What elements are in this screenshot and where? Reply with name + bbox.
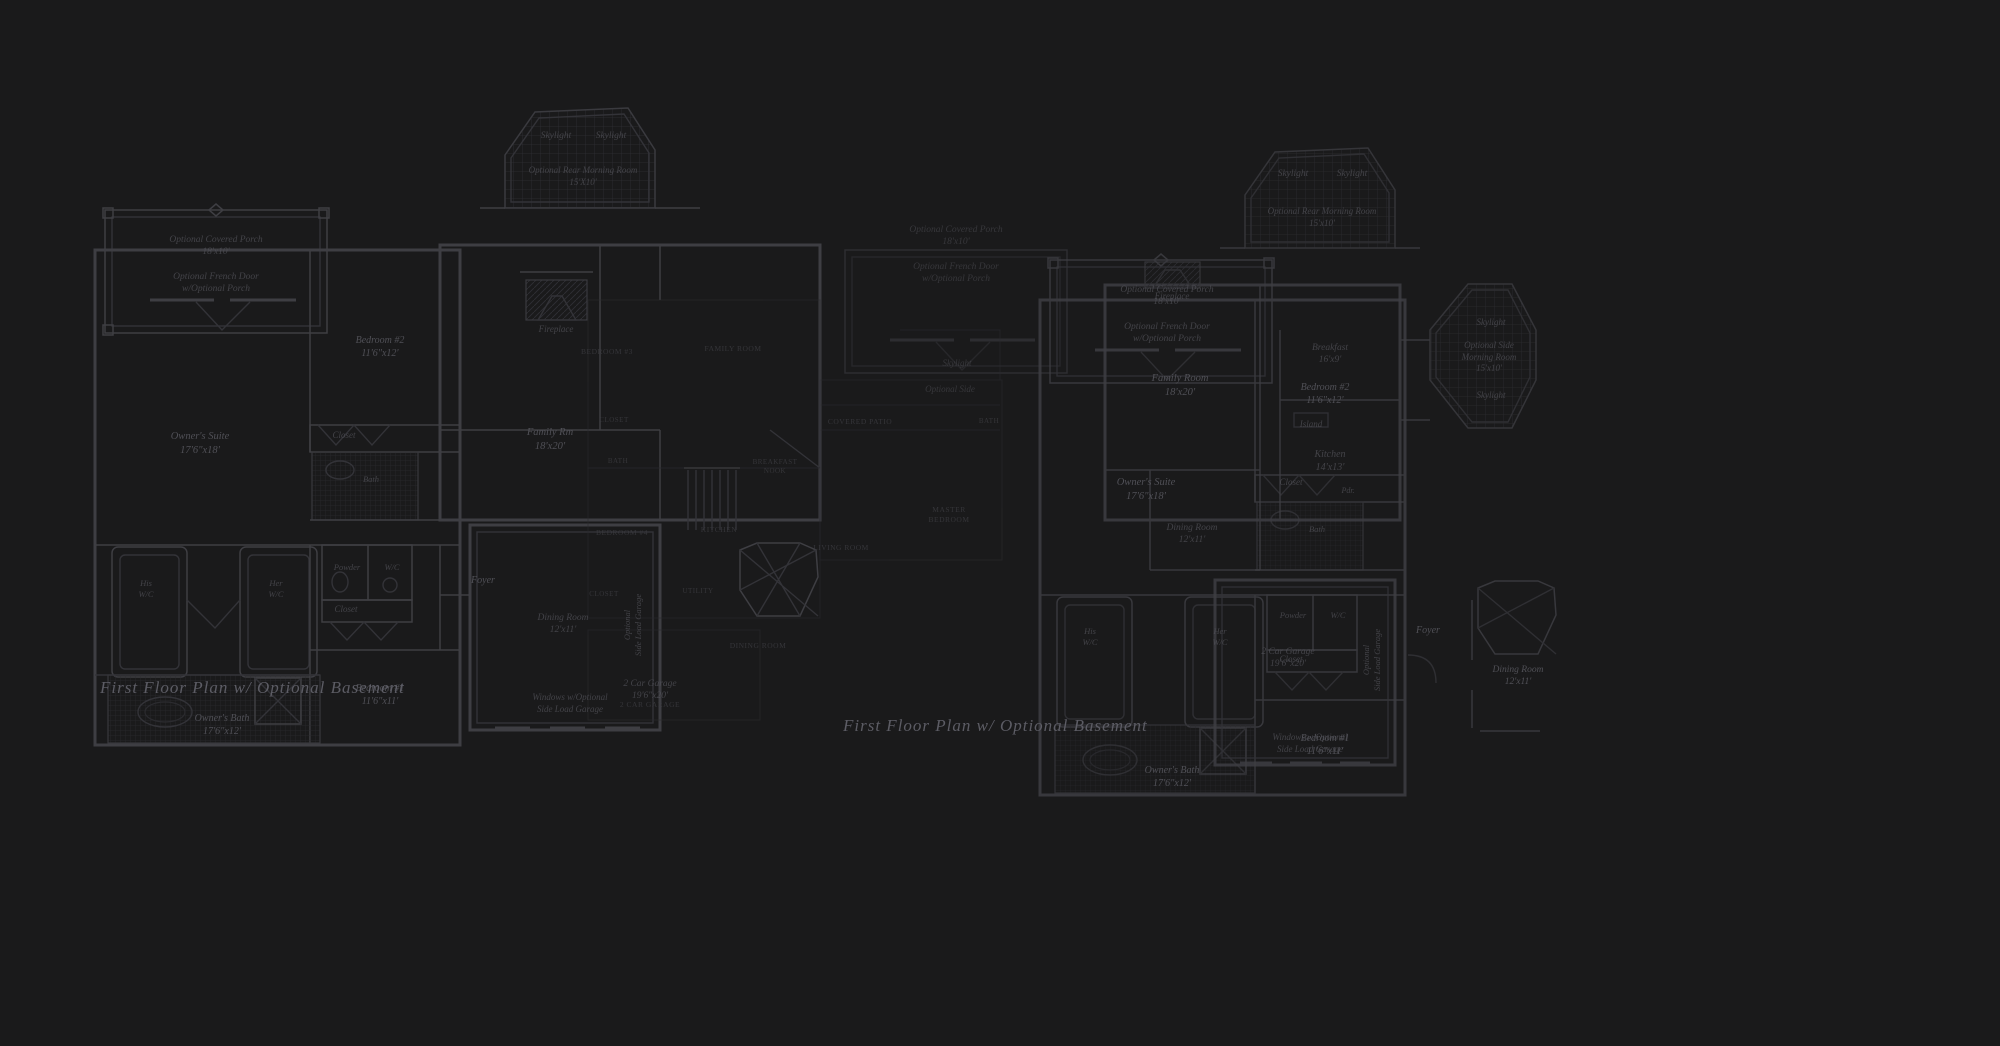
left-floor-plan-title: First Floor Plan w/ Optional Basement: [100, 678, 405, 698]
right-floor-plan-title: First Floor Plan w/ Optional Basement: [843, 716, 1148, 736]
faint-overlay-plan: [588, 300, 1002, 720]
plan-b-porch-overlay: [845, 250, 1067, 373]
plan-a-left-wing: [95, 204, 460, 745]
plan-a-right-wing: [440, 108, 820, 730]
floor-plan-screenshot: Optional Covered Porch18'x10'Optional Fr…: [0, 0, 2000, 1046]
floor-plan-line-drawing: [0, 0, 2000, 1046]
